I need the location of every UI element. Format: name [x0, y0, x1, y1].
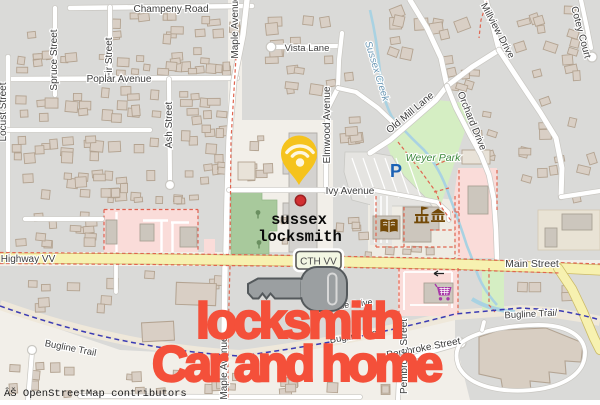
svg-text:sussex: sussex	[271, 211, 327, 229]
svg-text:Poplar Avenue: Poplar Avenue	[87, 74, 152, 85]
svg-text:Car and home: Car and home	[152, 336, 443, 392]
svg-text:Main Street: Main Street	[505, 258, 559, 270]
svg-text:Locust Street: Locust Street	[0, 82, 9, 141]
svg-text:Champeny Road: Champeny Road	[133, 4, 208, 15]
svg-text:locksmith: locksmith	[258, 228, 342, 246]
svg-text:Ash Street: Ash Street	[164, 101, 175, 148]
svg-text:Highway VV: Highway VV	[1, 254, 56, 265]
svg-text:CTH VV: CTH VV	[300, 257, 337, 268]
svg-text:Elmwood Avenue: Elmwood Avenue	[322, 86, 333, 164]
svg-text:Weyer Park: Weyer Park	[406, 152, 461, 164]
svg-text:P: P	[390, 161, 402, 181]
svg-text:ÂŠ OpenStreetMap contributors: ÂŠ OpenStreetMap contributors	[4, 386, 187, 400]
svg-text:Ivy Avenue: Ivy Avenue	[326, 186, 375, 197]
svg-text:Fir Street: Fir Street	[104, 37, 115, 78]
svg-text:Spruce Street: Spruce Street	[49, 29, 60, 90]
svg-text:Vista Lane: Vista Lane	[285, 43, 330, 54]
svg-text:Maple Avenue: Maple Avenue	[230, 0, 241, 59]
